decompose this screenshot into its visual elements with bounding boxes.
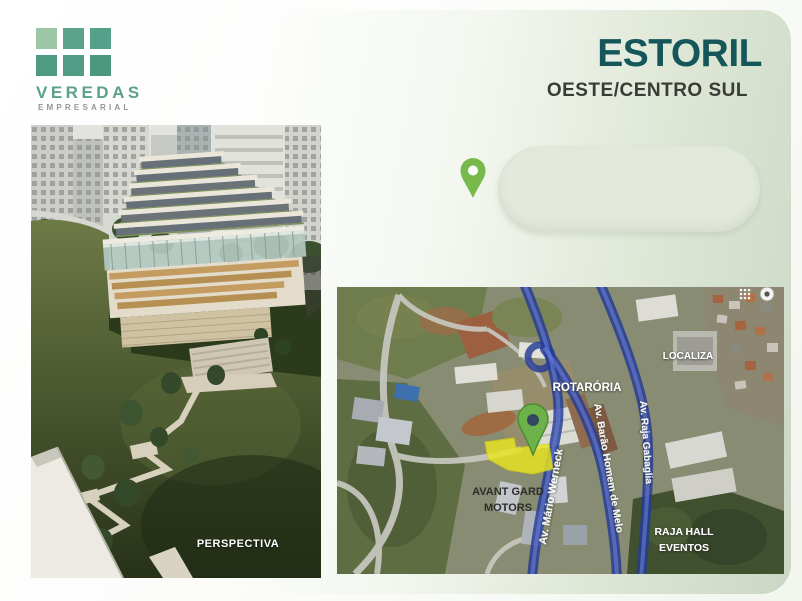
logo-square — [36, 55, 57, 76]
logo-square — [36, 28, 57, 49]
building-rendering-image — [31, 125, 321, 578]
label-raja-hall-line1: RAJA HALL — [654, 526, 714, 538]
label-localiza: LOCALIZA — [663, 351, 714, 362]
brand-name: VEREDAS — [36, 83, 143, 103]
label-rotatoria: ROTARÓRIA — [553, 381, 622, 394]
redacted-text-blob — [498, 146, 760, 232]
logo-square — [90, 55, 111, 76]
label-raja-hall-line2: EVENTOS — [659, 542, 709, 554]
satellite-map-image: ROTARÓRIA LOCALIZA AVANT GARD MOTORS RAJ… — [337, 287, 784, 574]
map-figure: ROTARÓRIA LOCALIZA AVANT GARD MOTORS RAJ… — [337, 287, 784, 574]
brand-tagline: EMPRESARIAL — [38, 103, 131, 112]
slide-header: ESTORIL OESTE/CENTRO SUL — [547, 34, 762, 102]
page-subtitle: OESTE/CENTRO SUL — [547, 80, 748, 102]
veredas-logo-icon — [36, 28, 111, 76]
perspective-caption: PERSPECTIVA — [178, 538, 298, 550]
map-pin-icon — [458, 156, 488, 200]
label-avant-gard-line1: AVANT GARD — [472, 486, 544, 498]
label-avant-gard-line2: MOTORS — [484, 502, 532, 514]
logo-square — [63, 55, 84, 76]
grid-dots-icon — [740, 289, 751, 300]
logo-square — [63, 28, 84, 49]
map-badge-icon — [760, 287, 774, 301]
logo-square — [90, 28, 111, 49]
perspective-figure: PERSPECTIVA — [31, 125, 321, 578]
page-title: ESTORIL — [547, 34, 762, 73]
